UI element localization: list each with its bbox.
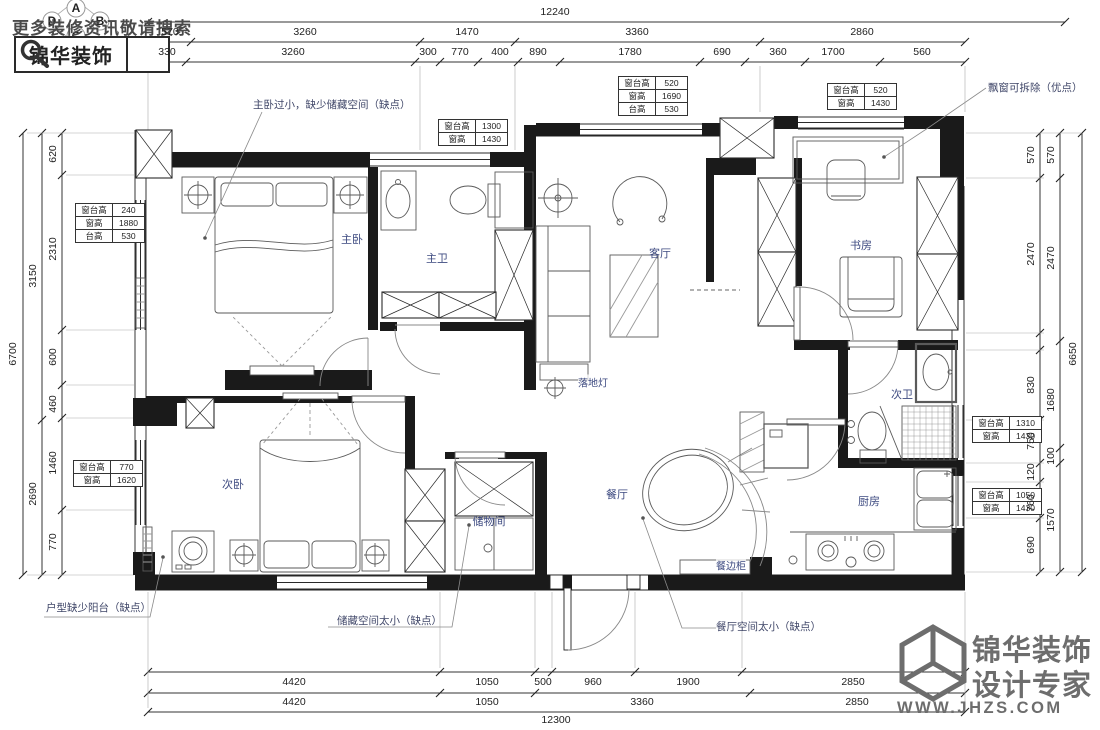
stove	[806, 534, 894, 570]
dim-label: 2310	[47, 237, 59, 260]
footer-tagline: 设计专家	[972, 662, 1092, 704]
dim-label: 770	[451, 46, 469, 58]
dim-right-overall: 6650	[1067, 342, 1079, 365]
annotation-no-balcony: 户型缺少阳台（缺点）	[46, 600, 151, 615]
second-bedroom-furniture	[143, 393, 389, 572]
footer-logo-icon	[902, 627, 964, 699]
dim-label: 100	[1045, 447, 1057, 465]
floorplan-page: A B C D 更多装修资讯敬请搜索 锦华装饰 主卧 主卫 客厅 书房 次卧 储…	[0, 0, 1100, 730]
dim-label: 300	[419, 46, 437, 58]
shower	[880, 406, 956, 460]
master-bedroom-furniture	[136, 177, 367, 375]
bay-box-nw	[136, 130, 172, 178]
second-bath-fixtures	[848, 344, 957, 463]
window-table-left-top: 窗台高240 窗高1880 台高530	[75, 203, 145, 243]
dim-label: 690	[713, 46, 731, 58]
label-floor-lamp: 落地灯	[578, 375, 608, 390]
dim-label: 760	[1025, 494, 1037, 512]
annotation-dining-small: 餐厅空间太小（缺点）	[716, 619, 821, 634]
master-bath-fixtures	[381, 171, 533, 230]
dim-label: 2690	[27, 482, 39, 505]
dim-label: 460	[47, 395, 59, 413]
window-table-top-right: 窗台高520 窗高1430	[827, 83, 897, 110]
dim-label: 620	[47, 145, 59, 163]
washing-machine	[172, 531, 214, 572]
compass-a: A	[72, 1, 81, 15]
floorplan-drawing: A B C D	[0, 0, 1100, 730]
dim-label: 3150	[27, 264, 39, 287]
dim-label: 890	[529, 46, 547, 58]
dim-label: 1900	[676, 676, 699, 688]
dim-label: 1460	[47, 451, 59, 474]
dim-label: 750	[1025, 432, 1037, 450]
dim-label: 1700	[821, 46, 844, 58]
study-furniture	[793, 137, 903, 317]
living-furniture	[536, 177, 667, 399]
dim-label: 830	[1025, 376, 1037, 394]
dim-bottom-overall: 12300	[541, 714, 570, 726]
dim-top-overall: 12240	[540, 6, 569, 18]
window-table-master-bath: 窗台高1300 窗高1430	[438, 119, 508, 146]
dim-label: 120	[1025, 463, 1037, 481]
annotation-storage-small: 储藏空间太小（缺点）	[337, 613, 442, 628]
annotation-bay-window: 飘窗可拆除（优点）	[988, 80, 1083, 95]
dim-label: 1050	[475, 696, 498, 708]
closet-column	[405, 469, 445, 572]
annotation-master: 主卧过小，缺少储藏空间（缺点）	[253, 97, 411, 112]
hall-wardrobe	[758, 178, 796, 326]
dim-label: 1050	[475, 676, 498, 688]
label-sideboard: 餐边柜	[716, 558, 746, 573]
dim-label: 770	[47, 533, 59, 551]
room-label-master-bath: 主卫	[426, 250, 448, 266]
dim-label: 3360	[625, 26, 648, 38]
elevator-shaft	[720, 118, 774, 158]
dim-label: 2470	[1045, 246, 1057, 269]
dim-label: 4420	[282, 696, 305, 708]
dim-label: 1470	[455, 26, 478, 38]
footer-website: WWW.JHZS.COM	[897, 699, 1063, 718]
dim-label: 2470	[1025, 242, 1037, 265]
window-table-left-bottom: 窗台高770 窗高1620	[73, 460, 143, 487]
dim-label: 570	[161, 26, 179, 38]
dim-label: 3260	[281, 46, 304, 58]
dim-label: 2850	[845, 696, 868, 708]
dim-label: 2860	[850, 26, 873, 38]
dim-label: 2850	[841, 676, 864, 688]
room-label-second-bath: 次卫	[891, 386, 913, 402]
room-label-living: 客厅	[649, 245, 671, 261]
room-label-second-bedroom: 次卧	[222, 476, 244, 492]
dim-label: 960	[584, 676, 602, 688]
dim-label: 570	[1025, 146, 1037, 164]
dim-left-overall: 6700	[7, 342, 19, 365]
dim-label: 360	[769, 46, 787, 58]
dim-label: 1570	[1045, 508, 1057, 531]
room-label-master-bedroom: 主卧	[341, 231, 363, 247]
fridge	[914, 468, 956, 530]
dim-label: 400	[491, 46, 509, 58]
dim-label: 600	[47, 348, 59, 366]
dim-label: 570	[1045, 146, 1057, 164]
wardrobe-small	[186, 398, 214, 428]
storage-shelf-x	[455, 462, 533, 516]
dim-label: 500	[534, 676, 552, 688]
dim-label: 1780	[618, 46, 641, 58]
dim-label: 3360	[630, 696, 653, 708]
window-table-top-center: 窗台高520 窗高1690 台高530	[618, 76, 688, 116]
brand-box: 锦华装饰	[14, 36, 170, 73]
dim-label: 330	[158, 46, 176, 58]
dim-label: 3260	[293, 26, 316, 38]
room-label-study: 书房	[850, 237, 872, 253]
room-label-dining: 餐厅	[606, 486, 628, 502]
room-label-storage: 储物间	[473, 513, 506, 529]
dim-label: 4420	[282, 676, 305, 688]
study-wardrobe	[917, 177, 958, 330]
dim-label: 690	[1025, 536, 1037, 554]
bath-cabinet	[382, 230, 533, 320]
dining-furniture	[631, 437, 770, 574]
dim-label: 1680	[1045, 388, 1057, 411]
dim-label: 560	[913, 46, 931, 58]
room-label-kitchen: 厨房	[858, 493, 880, 509]
